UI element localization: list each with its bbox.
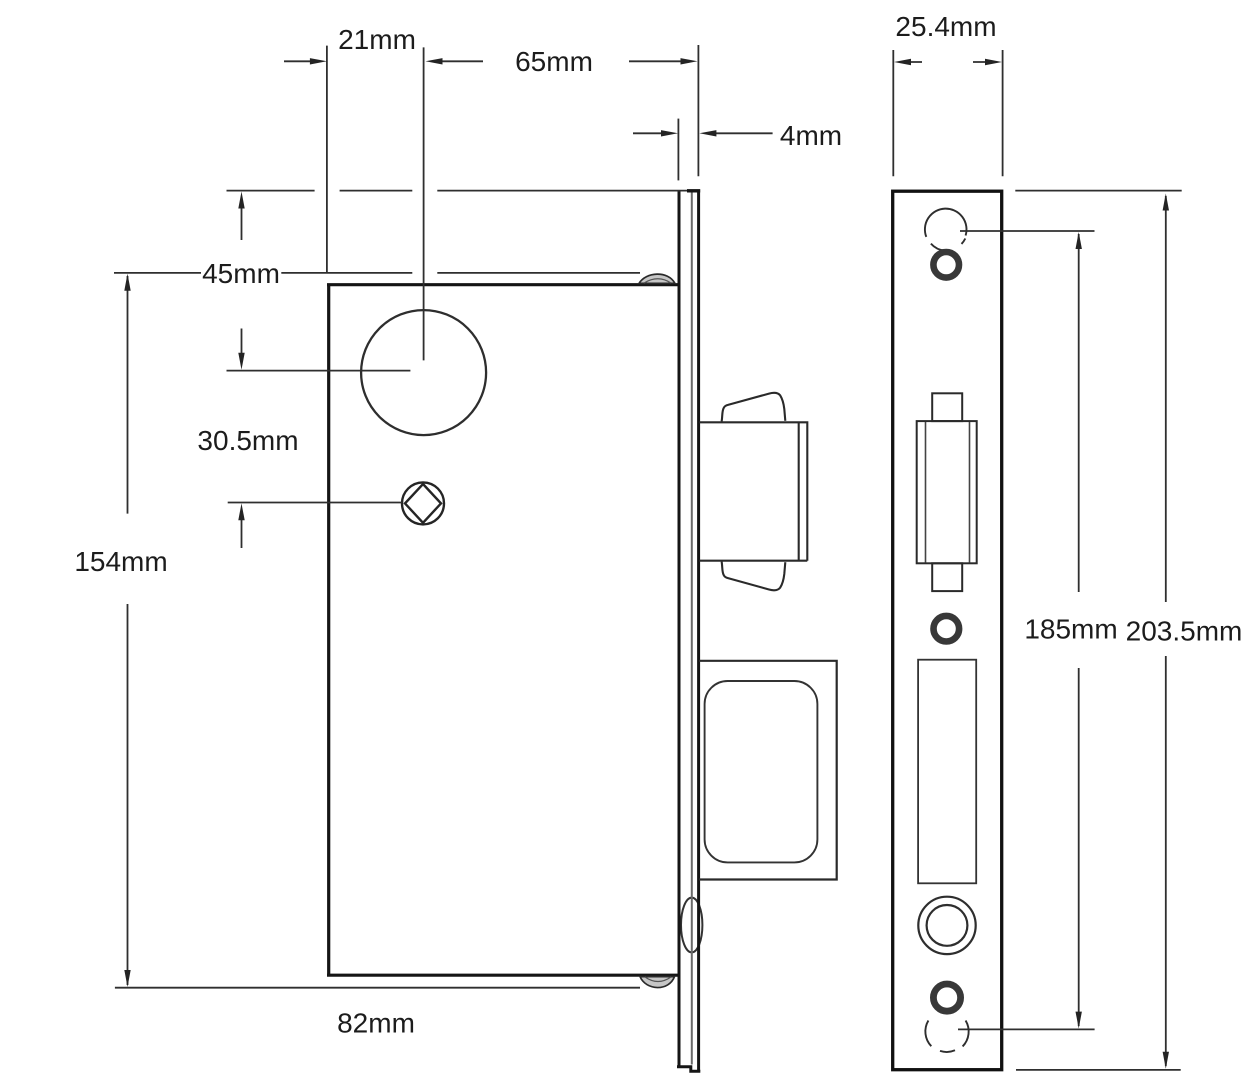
svg-text:45mm: 45mm xyxy=(202,258,280,289)
svg-text:203.5mm: 203.5mm xyxy=(1126,616,1243,647)
svg-text:25.4mm: 25.4mm xyxy=(895,11,996,42)
svg-text:30.5mm: 30.5mm xyxy=(197,425,298,456)
svg-text:185mm: 185mm xyxy=(1024,614,1117,645)
svg-text:21mm: 21mm xyxy=(338,24,416,55)
svg-text:82mm: 82mm xyxy=(337,1008,415,1039)
svg-text:4mm: 4mm xyxy=(780,120,842,151)
svg-text:65mm: 65mm xyxy=(515,46,593,77)
svg-text:154mm: 154mm xyxy=(74,546,167,577)
